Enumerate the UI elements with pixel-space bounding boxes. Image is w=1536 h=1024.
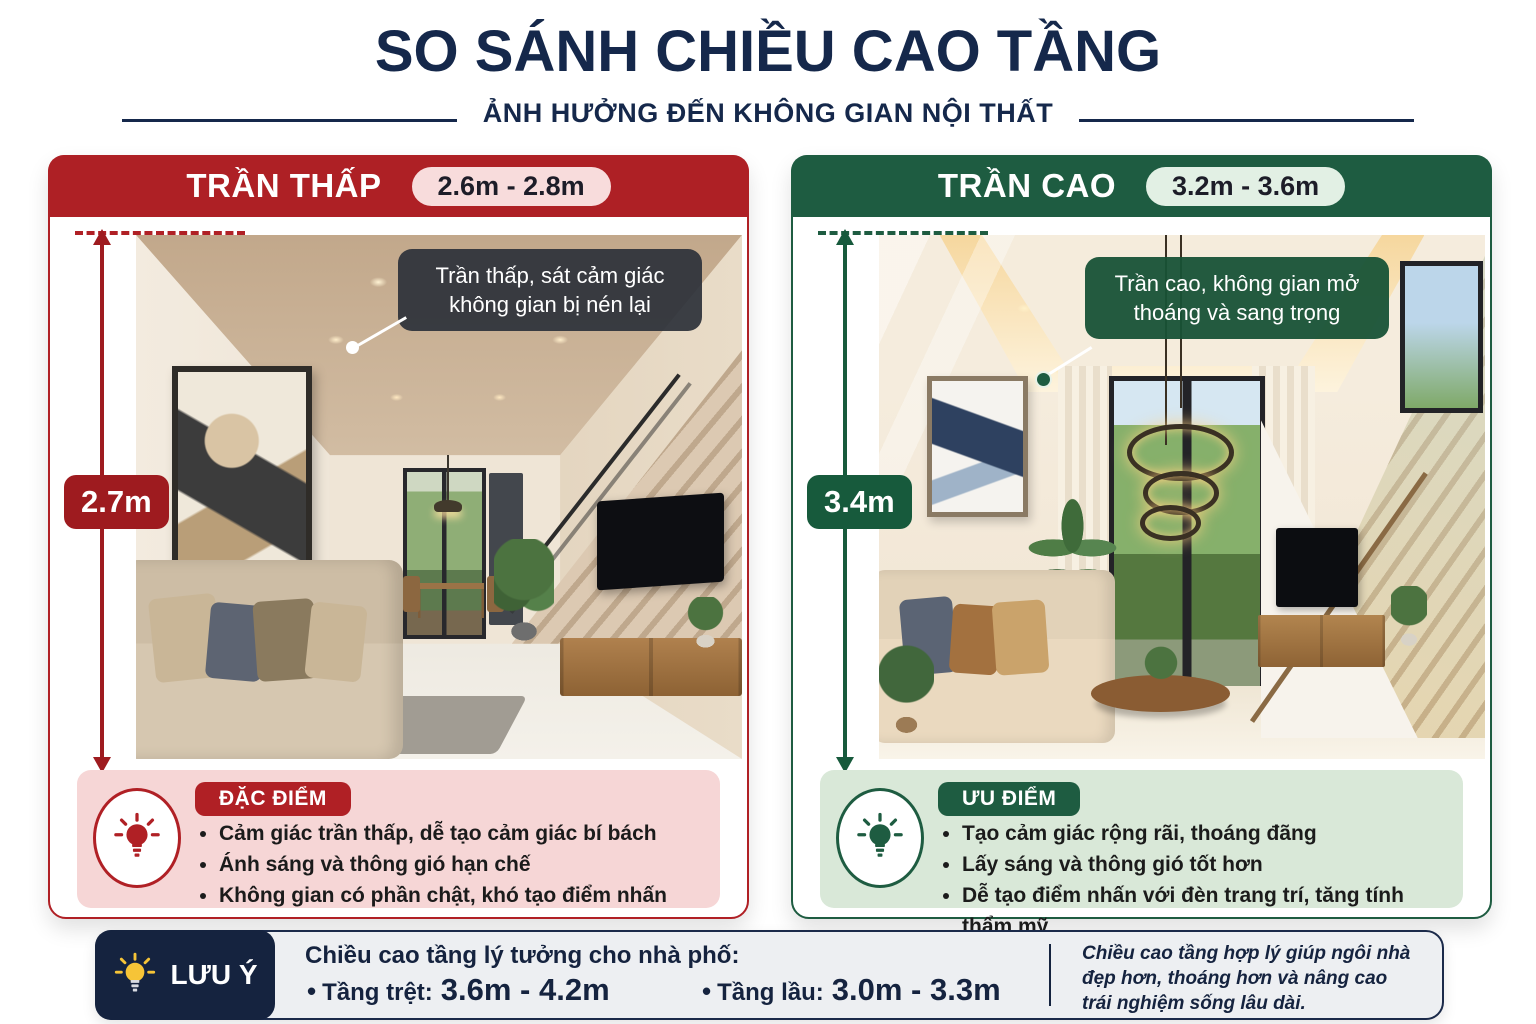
wall-art [927,376,1028,517]
high-panel-header: TRẦN CAO 3.2m - 3.6m [791,155,1492,217]
high-ceiling-panel: TRẦN CAO 3.2m - 3.6m 3.4m [791,155,1492,919]
high-advantage-list: Tạo cảm giác rộng rãi, thoáng đãng Lấy s… [942,818,1463,942]
advantage-bullet: Lấy sáng và thông gió tốt hơn [962,849,1453,880]
pendant-lamp [434,500,462,512]
bullet-marker: • [702,976,711,1006]
high-info-title: ƯU ĐIỂM [938,782,1080,816]
note-divider [1049,944,1051,1006]
advantage-bullet: Tạo cảm giác rộng rãi, thoáng đãng [962,818,1453,849]
high-info-box: ƯU ĐIỂM Tạo cảm giác rộng rãi, thoáng đã… [820,770,1463,908]
tv-screen [1276,528,1358,607]
high-measure-label: 3.4m [807,475,912,529]
callout-pointer-dot [346,341,359,354]
note-item-ground-floor: •Tầng trệt:3.6m - 4.2m [307,972,610,1008]
subtitle-right-line [1079,119,1414,122]
subtitle-left-line [122,119,457,122]
pendant-cord [447,455,449,502]
low-height-range-badge: 2.6m - 2.8m [412,167,611,206]
note-bar: LƯU Ý Chiều cao tầng lý tưởng cho nhà ph… [95,930,1444,1020]
potted-plant [494,539,555,644]
low-info-box: ĐẶC ĐIỂM Cảm giác trần thấp, dễ tạo cảm … [77,770,720,908]
note-item-value: 3.6m - 4.2m [441,972,610,1007]
tv-screen [597,493,724,591]
potted-plant [687,597,723,649]
note-label: LƯU Ý [170,959,257,991]
bullet-marker: • [307,976,316,1006]
note-item-upper-floor: •Tầng lầu:3.0m - 3.3m [702,972,1001,1008]
high-height-range-badge: 3.2m - 3.6m [1146,167,1345,206]
potted-plant [879,644,934,738]
ring-pendant-light [1140,505,1202,541]
note-label-box: LƯU Ý [95,930,275,1020]
dining-table [418,583,485,618]
high-ceiling-callout: Trần cao, không gian mở thoáng và sang t… [1085,257,1389,339]
lightbulb-badge [93,788,181,888]
sofa [136,560,403,759]
lightbulb-badge [836,788,924,888]
page-subtitle: ẢNH HƯỞNG ĐẾN KHÔNG GIAN NỘI THẤT [483,98,1053,129]
sofa-cushion [304,601,367,682]
lightbulb-icon [111,812,163,864]
note-item-label: Tầng trệt: [322,979,433,1006]
low-ceiling-callout: Trần thấp, sát cảm giác không gian bị né… [398,249,702,331]
potted-plant [1391,586,1427,649]
dining-chair [403,576,420,613]
sofa-cushion [992,600,1050,676]
infographic-canvas: SO SÁNH CHIỀU CAO TẦNG ẢNH HƯỞNG ĐẾN KHÔ… [0,0,1536,1024]
low-ceiling-panel: TRẦN THẤP 2.6m - 2.8m 2.7m [48,155,749,919]
page-title: SO SÁNH CHIỀU CAO TẦNG [0,18,1536,85]
subtitle-row: ẢNH HƯỞNG ĐẾN KHÔNG GIAN NỘI THẤT [0,98,1536,129]
low-panel-title: TRẦN THẤP [186,167,381,205]
table-plant [1140,644,1182,691]
low-panel-header: TRẦN THẤP 2.6m - 2.8m [48,155,749,217]
feature-bullet: Ánh sáng và thông gió hạn chế [219,849,667,880]
low-info-title: ĐẶC ĐIỂM [195,782,351,816]
wall-art [172,366,311,593]
note-heading: Chiều cao tầng lý tưởng cho nhà phố: [305,942,739,970]
high-panel-title: TRẦN CAO [938,167,1116,205]
tv-console [1258,615,1385,667]
feature-bullet: Cảm giác trần thấp, dễ tạo cảm giác bí b… [219,818,667,849]
note-aside-text: Chiều cao tầng hợp lý giúp ngôi nhà đẹp … [1082,941,1416,1016]
lightbulb-icon [112,952,158,998]
callout-pointer-dot [1035,371,1052,388]
note-item-value: 3.0m - 3.3m [832,972,1001,1007]
low-feature-list: Cảm giác trần thấp, dễ tạo cảm giác bí b… [199,818,677,911]
note-item-label: Tầng lầu: [717,979,824,1006]
lightbulb-icon [854,812,906,864]
low-measure-label: 2.7m [64,475,169,529]
feature-bullet: Không gian có phần chật, khó tạo điểm nh… [219,880,667,911]
upper-window [1400,261,1483,412]
